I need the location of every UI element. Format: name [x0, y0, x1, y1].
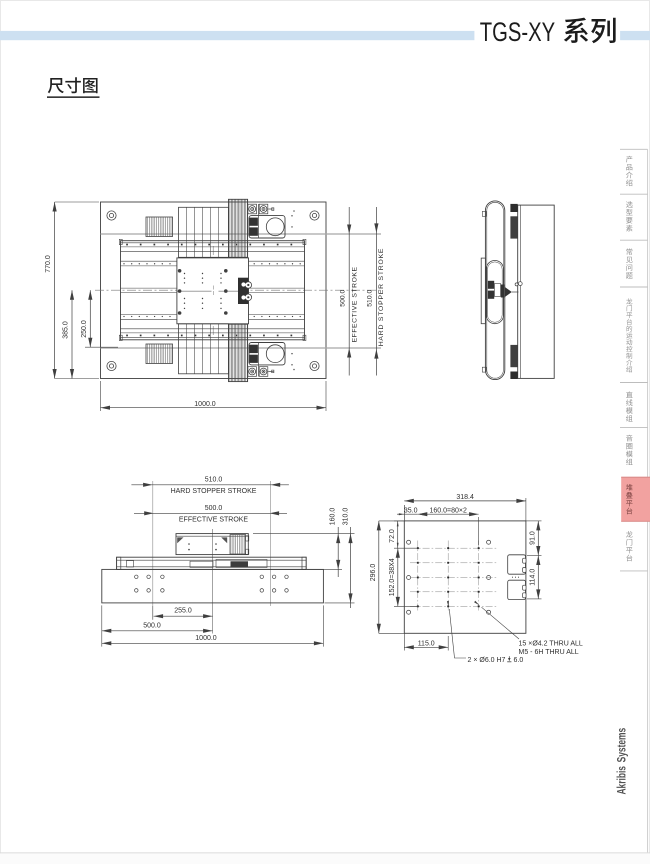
- svg-text:TGS-XY: TGS-XY: [480, 17, 555, 48]
- svg-text:510.0: 510.0: [205, 476, 223, 483]
- svg-text:91.0: 91.0: [530, 531, 537, 545]
- svg-text:255.0: 255.0: [174, 608, 192, 615]
- svg-text:35.0: 35.0: [404, 508, 418, 515]
- svg-text:EFFECTIVE STROKE: EFFECTIVE STROKE: [179, 517, 249, 524]
- svg-text:152.0=38X4: 152.0=38X4: [389, 558, 396, 596]
- svg-text:160.0=80×2: 160.0=80×2: [430, 508, 467, 515]
- svg-text:6.0: 6.0: [514, 657, 524, 664]
- svg-text:318.4: 318.4: [456, 494, 474, 501]
- svg-text:250.0: 250.0: [81, 320, 88, 338]
- svg-text:115.0: 115.0: [418, 640, 435, 647]
- svg-text:500.0: 500.0: [205, 505, 223, 512]
- svg-text:510.0: 510.0: [366, 289, 373, 306]
- svg-text:1000.0: 1000.0: [195, 635, 217, 642]
- svg-text:HARD STOPPER STROKE: HARD STOPPER STROKE: [378, 248, 385, 347]
- svg-text:HARD STOPPER STROKE: HARD STOPPER STROKE: [171, 488, 257, 495]
- svg-text:Akribis Systems: Akribis Systems: [616, 728, 629, 795]
- svg-text:500.0: 500.0: [143, 622, 161, 629]
- svg-text:296.0: 296.0: [370, 564, 377, 582]
- svg-text:15 ×Ø4.2 THRU ALL: 15 ×Ø4.2 THRU ALL: [519, 640, 583, 647]
- svg-text:385.0: 385.0: [63, 321, 70, 339]
- svg-text:2 × Ø6.0 H7: 2 × Ø6.0 H7: [468, 657, 506, 664]
- svg-text:310.0: 310.0: [342, 508, 349, 526]
- svg-text:M5 - 6H THRU ALL: M5 - 6H THRU ALL: [519, 649, 579, 656]
- svg-text:72.0: 72.0: [389, 529, 396, 543]
- svg-text:114.0: 114.0: [530, 569, 537, 586]
- svg-text:500.0: 500.0: [340, 289, 347, 306]
- svg-text:1000.0: 1000.0: [194, 401, 216, 408]
- svg-text:160.0: 160.0: [329, 508, 336, 526]
- svg-text:EFFECTIVE STROKE: EFFECTIVE STROKE: [352, 266, 359, 342]
- svg-text:770.0: 770.0: [45, 255, 52, 273]
